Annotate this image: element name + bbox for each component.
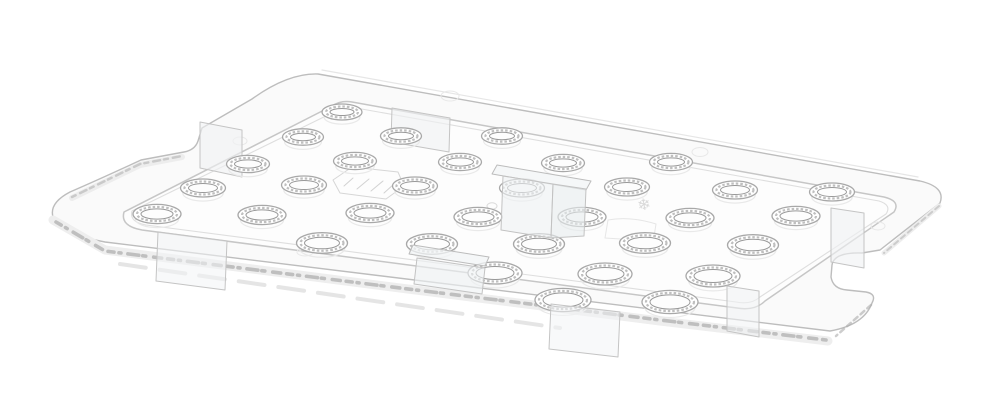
drain-hole	[666, 208, 714, 231]
clip-tab-right-corner	[727, 286, 759, 337]
hole-inner-edge	[522, 238, 557, 250]
drain-hole	[133, 204, 181, 227]
hole-inner-edge	[330, 109, 354, 116]
bracket-center-panel-right	[551, 184, 586, 238]
drain-hole	[642, 290, 698, 317]
hole-inner-edge	[780, 211, 812, 221]
hole-inner-edge	[613, 183, 642, 192]
drain-hole	[454, 207, 502, 230]
hole-inner-edge	[818, 188, 847, 197]
product-photo-drain-tray: ❄	[0, 0, 1000, 406]
hole-inner-edge	[721, 186, 750, 195]
drain-hole	[238, 205, 286, 228]
hole-inner-edge	[354, 208, 386, 218]
hole-inner-edge	[586, 268, 624, 281]
hole-inner-edge	[291, 133, 316, 140]
hole-inner-edge	[674, 213, 706, 223]
hole-inner-edge	[305, 237, 340, 249]
hole-inner-edge	[447, 158, 474, 166]
hole-inner-edge	[290, 181, 319, 190]
hole-inner-edge	[490, 132, 515, 139]
hole-inner-edge	[389, 132, 414, 139]
hole-inner-edge	[462, 212, 494, 222]
drain-tray-illustration: ❄	[0, 0, 1000, 406]
hole-inner-edge	[141, 209, 173, 219]
hole-inner-edge	[736, 239, 771, 251]
hole-inner-edge	[246, 210, 278, 220]
hole-inner-edge	[235, 160, 262, 168]
hole-inner-edge	[694, 270, 732, 283]
hole-inner-edge	[401, 182, 430, 191]
clip-tab-front-left	[156, 232, 227, 290]
drain-hole	[620, 233, 671, 258]
hole-inner-edge	[628, 237, 663, 249]
hole-inner-edge	[658, 158, 685, 166]
clip-tab-right	[831, 208, 864, 268]
bracket-center-panel-left	[501, 176, 553, 238]
hole-inner-edge	[550, 159, 577, 167]
drain-hole	[772, 206, 820, 229]
hole-inner-edge	[189, 184, 218, 193]
hole-inner-edge	[342, 157, 369, 165]
hole-inner-edge	[650, 295, 690, 309]
clip-tab-front	[549, 304, 620, 357]
drain-hole	[578, 263, 632, 289]
drain-hole	[297, 233, 348, 258]
drain-hole	[728, 235, 779, 260]
drain-hole	[346, 203, 394, 226]
